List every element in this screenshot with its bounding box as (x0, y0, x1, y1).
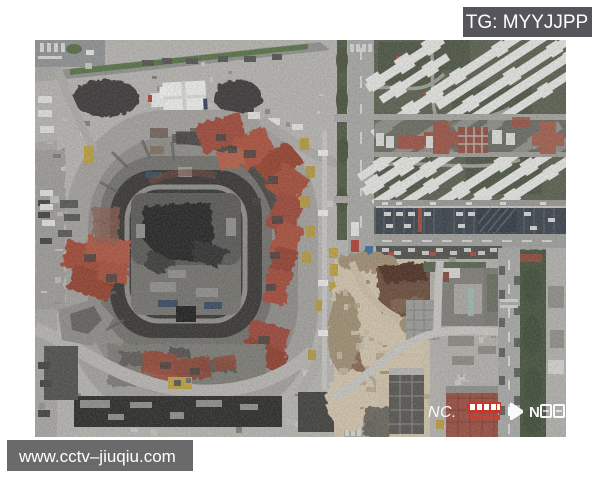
svg-text:www.cctv–jiuqiu.com: www.cctv–jiuqiu.com (18, 447, 176, 466)
svg-text:TG: MYYJJPP: TG: MYYJJPP (466, 12, 588, 33)
svg-text:NC.: NC. (428, 404, 457, 421)
svg-text:N: N (529, 404, 540, 421)
